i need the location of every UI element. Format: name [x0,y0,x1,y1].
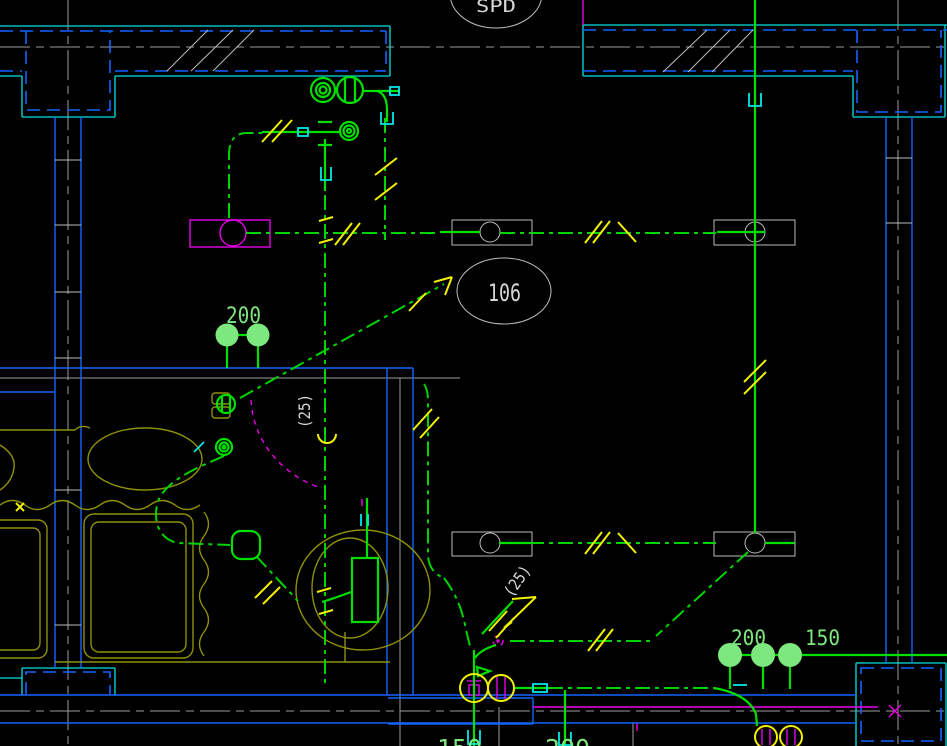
cyan-fittings [194,87,761,745]
pump-symbol-a [311,78,335,102]
flush-valve [352,558,378,622]
riser-tag-label: SPD [476,0,516,17]
room-tags [450,0,551,324]
flow-arrowhead [434,277,452,295]
pump-circle-c [755,726,777,746]
shower-stall-right [84,514,193,658]
bottom-edge-200-label: 200 [545,734,590,746]
pipe-size-low-label: (25) [500,562,535,601]
pipes-dashed [156,118,748,688]
toilet-bowl-outer [296,530,430,650]
room-number-label: 106 [488,279,521,307]
shower-curtain [200,512,209,656]
floor-drain [232,531,260,559]
walls-blue [0,117,912,724]
sprinkler-left-label: 200 [226,304,261,329]
sink-basin [88,428,202,490]
counter-wave-edge [0,501,200,510]
cad-floorplan-canvas: SPD 106 200 (25) (25) 200 150 150 200 [0,0,947,746]
pump-circle-b [488,675,514,701]
magenta-elements [190,0,901,745]
sprinkler-right-150-label: 150 [805,626,840,650]
wall-hatching [167,30,753,72]
sprinkler-heads [216,324,803,668]
cleanout-symbol [318,434,336,443]
pipe-size-mid-label: (25) [295,394,314,428]
wall-dividers [55,158,912,625]
junction-boxes [452,220,795,556]
pump-symbol-b [337,77,363,103]
sprinkler-right-200-label: 200 [731,626,766,650]
pump-circle-d [780,726,802,746]
sprinkler-concentric [216,439,232,455]
bottom-edge-150-label: 150 [437,734,482,746]
